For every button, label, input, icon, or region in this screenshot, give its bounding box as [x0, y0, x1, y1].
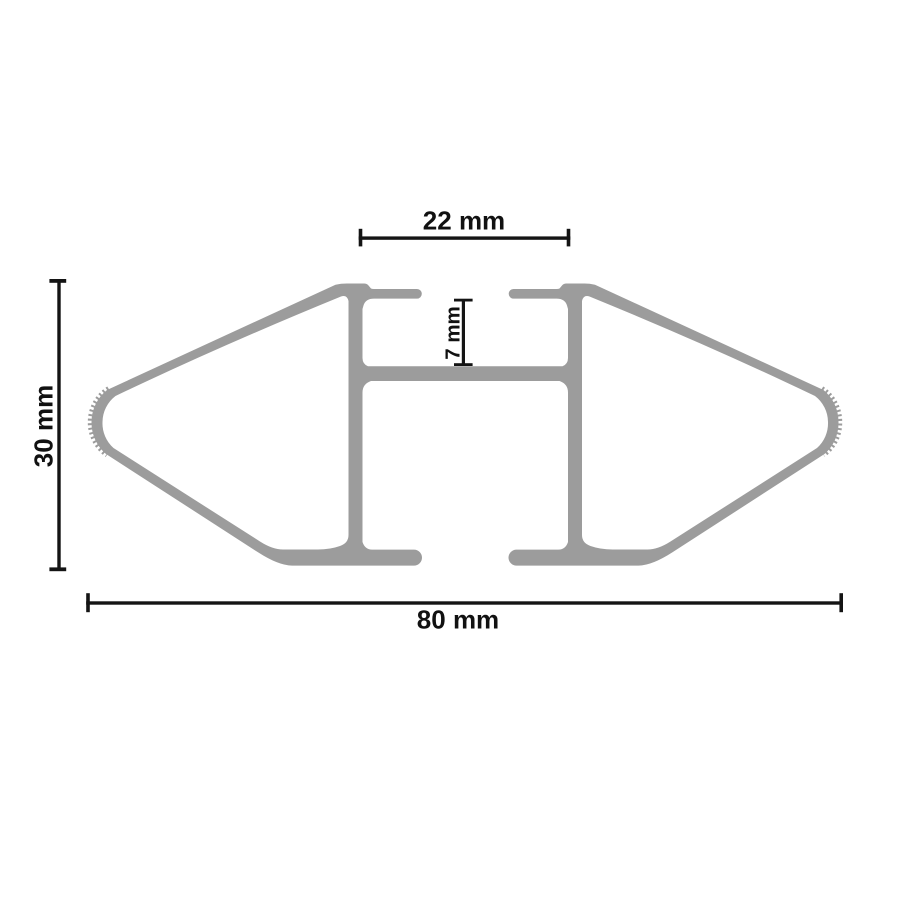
svg-text:22 mm: 22 mm: [423, 206, 505, 236]
svg-text:80 mm: 80 mm: [417, 605, 499, 635]
svg-text:7 mm: 7 mm: [442, 306, 465, 360]
svg-text:30 mm: 30 mm: [29, 385, 59, 467]
